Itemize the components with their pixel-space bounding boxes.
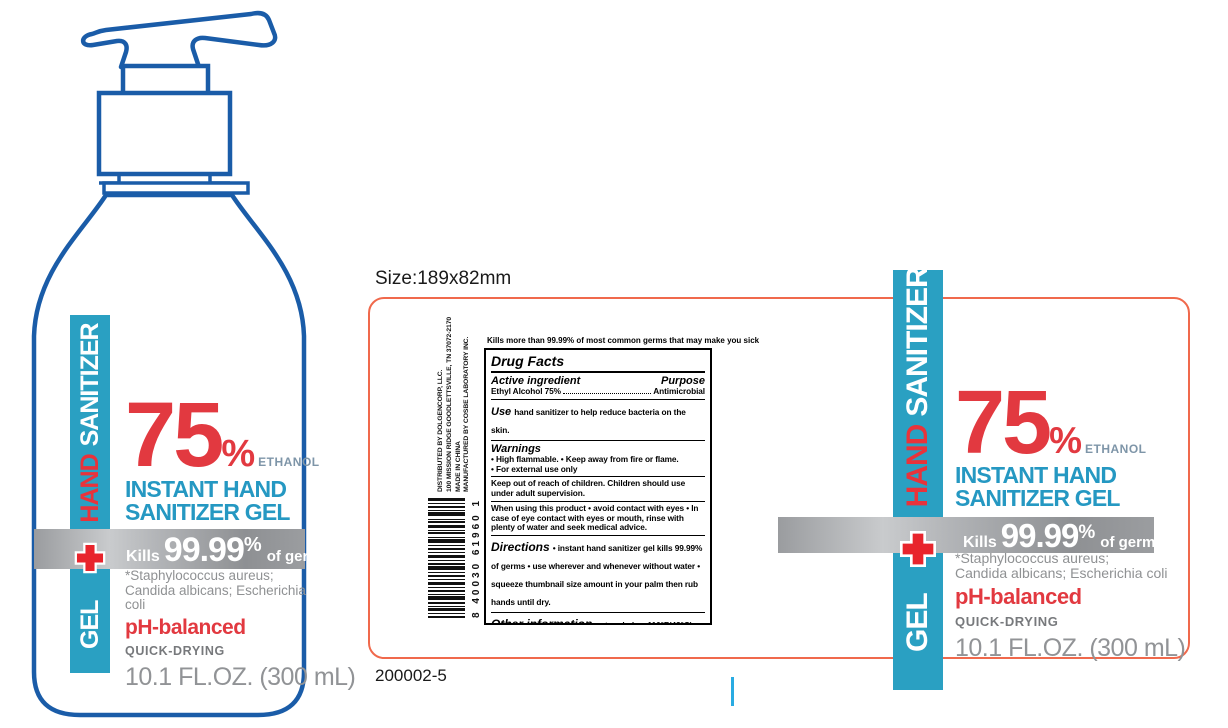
part-number: 200002-5	[375, 666, 447, 686]
text-cursor-mark	[731, 677, 734, 706]
band-gel-label: GEL	[76, 601, 105, 649]
percent-value: 75	[955, 388, 1049, 458]
ethanol-label: ETHANOL	[258, 455, 320, 469]
panel-label-text-block: 75 % ETHANOL INSTANT HAND SANITIZER GEL …	[955, 388, 1190, 663]
pump-handle-icon	[83, 13, 275, 67]
volume-label: 10.1 FL.OZ. (300 mL)	[955, 634, 1190, 663]
barcode-bars-icon	[428, 496, 465, 618]
distributor-line: 100 MISSION RIDGE GOODLETTSVILLE, TN 370…	[446, 334, 455, 492]
active-ingredient-value: Ethyl Alcohol 75%	[491, 387, 561, 397]
directions-header: Directions	[491, 540, 550, 554]
upc-barcode: 8 40030 61960 1	[428, 496, 480, 618]
warnings-header: Warnings	[491, 443, 705, 455]
percent-value: 75	[125, 400, 221, 472]
band-spacer	[125, 523, 320, 569]
other-information-header: Other information	[491, 617, 592, 625]
alcohol-percent: 75 % ETHANOL	[125, 400, 320, 476]
volume-label: 10.1 FL.OZ. (300 mL)	[125, 663, 320, 692]
percent-sign: %	[1049, 420, 1082, 462]
active-ingredient-section: Active ingredient Purpose Ethyl Alcohol …	[491, 371, 705, 399]
use-text: hand sanitizer to help reduce bacteria o…	[491, 407, 686, 435]
germs-note-line2: Candida albicans; Escherichia coli	[125, 584, 320, 613]
keep-out-section: Keep out of reach of children. Children …	[491, 476, 705, 501]
germs-note-line2: Candida albicans; Escherichia coli	[955, 566, 1190, 581]
distributor-info: DISTRIBUTED BY DOLGENCORP, LLC. 100 MISS…	[437, 334, 477, 492]
distributor-line: MANUFACTURED BY COSBE LABORATORY INC.	[463, 334, 472, 492]
ethanol-label: ETHANOL	[1085, 442, 1147, 456]
use-header: Use	[491, 406, 511, 418]
label-tagline: Kills more than 99.99% of most common ge…	[487, 336, 715, 345]
band-sanitizer-label: SANITIZER	[76, 323, 105, 446]
directions-section: Directions• instant hand sanitizer gel k…	[491, 535, 705, 612]
bottle-cap	[99, 93, 230, 174]
distributor-line: DISTRIBUTED BY DOLGENCORP, LLC.	[437, 334, 446, 492]
product-title-line2: SANITIZER GEL	[955, 487, 1190, 510]
percent-sign: %	[221, 433, 255, 476]
label-size-note: Size:189x82mm	[375, 268, 511, 290]
medical-cross-icon	[73, 541, 107, 575]
bottle-label-text-block: 75 % ETHANOL INSTANT HAND SANITIZER GEL …	[125, 400, 320, 692]
distributor-line: MADE IN CHINA	[455, 334, 464, 492]
band-gel-label: GEL	[901, 593, 935, 652]
germs-note-line1: *Staphylococcus aureus;	[955, 551, 1190, 566]
product-title-line2: SANITIZER GEL	[125, 501, 320, 524]
bottle-neck-ring	[104, 183, 248, 193]
pump-collar	[123, 66, 208, 95]
quick-drying-label: QUICK-DRYING	[125, 644, 320, 658]
ph-balanced-label: pH-balanced	[125, 616, 320, 640]
ph-balanced-label: pH-balanced	[955, 584, 1190, 610]
warnings-section: Warnings • High flammable. • Keep away f…	[491, 440, 705, 477]
label-sheet: Kills 99.99 % of germs* GEL HAND SANITIZ…	[0, 0, 1228, 728]
alcohol-percent: 75 % ETHANOL	[955, 388, 1190, 462]
band-sanitizer-label: SANITIZER	[901, 267, 935, 416]
band-hand-label: HAND	[901, 425, 935, 508]
drug-facts-panel: Drug Facts Active ingredient Purpose Eth…	[484, 348, 712, 625]
other-information-section: Other information• store below 110°F(43°…	[491, 612, 705, 625]
medical-cross-icon	[898, 529, 938, 569]
use-section: Usehand sanitizer to help reduce bacteri…	[491, 399, 705, 440]
band-hand-label: HAND	[76, 454, 105, 522]
barcode-number: 8 40030 61960 1	[471, 496, 482, 618]
panel-band-text: GEL HAND SANITIZER	[893, 270, 943, 690]
product-title-line1: INSTANT HAND	[955, 464, 1190, 487]
warnings-bullet: • For external use only	[491, 465, 705, 475]
germs-note-line1: *Staphylococcus aureus;	[125, 569, 320, 584]
bottle-band-text: GEL HAND SANITIZER	[70, 315, 110, 673]
dotted-leader	[563, 393, 651, 394]
band-spacer	[955, 509, 1190, 551]
product-title-line1: INSTANT HAND	[125, 478, 320, 501]
quick-drying-label: QUICK-DRYING	[955, 614, 1190, 629]
when-using-section: When using this product • avoid contact …	[491, 501, 705, 535]
drug-facts-title: Drug Facts	[491, 352, 705, 371]
purpose-value: Antimicrobial	[653, 387, 705, 397]
